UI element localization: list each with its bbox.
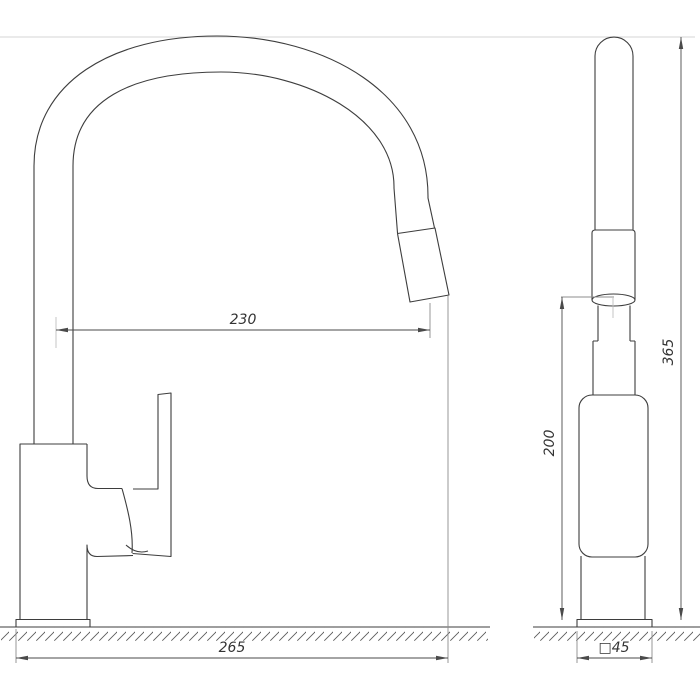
spout-outer-line: [34, 36, 435, 444]
arrow-right-spout-reach: [418, 328, 430, 332]
faucet-dimension-drawing: 230 265 200 365 □45: [0, 0, 700, 700]
arrow-left-overall-length: [16, 656, 28, 660]
neck-lower-side: [593, 341, 635, 395]
side-view: [577, 37, 652, 627]
body-lower-side: [581, 556, 645, 620]
base-plate-side: [577, 620, 652, 628]
arrow-left-spout-reach: [56, 328, 68, 332]
dim-label-overall-length: 265: [219, 640, 246, 656]
neck-upper-side: [598, 306, 630, 342]
ground: [0, 627, 700, 641]
dim-label-overall-height: 365: [661, 339, 677, 366]
arrow-top-height-to-aerator: [560, 297, 564, 309]
dimension-annotations: 230 265 200 365 □45: [16, 37, 683, 663]
body-left-outline: [20, 444, 87, 620]
arrow-right-base-size: [640, 656, 652, 660]
handle-hub-lower-curve: [126, 545, 148, 552]
aerator-ellipse: [592, 294, 635, 306]
arrow-right-overall-length: [436, 656, 448, 660]
dim-label-height-to-aerator: 200: [542, 430, 558, 457]
arrow-left-base-size: [577, 656, 589, 660]
dim-label-base-size: □45: [598, 640, 629, 656]
body-lower-shelf: [87, 545, 133, 620]
arrow-top-overall-height: [679, 37, 683, 49]
body-shell-side: [579, 395, 648, 557]
body-upper-shelf: [87, 444, 122, 489]
handle-lever: [133, 393, 172, 557]
dim-label-spout-reach: 230: [230, 312, 257, 328]
ground-hatch-left: [1, 628, 488, 641]
arrow-bottom-overall-height: [679, 608, 683, 620]
ground-hatch-right: [534, 628, 700, 641]
spout-tube-side: [595, 37, 633, 230]
spout-inner-line: [73, 72, 398, 444]
arrow-bottom-height-to-aerator: [560, 608, 564, 620]
spray-head: [398, 228, 450, 302]
technical-drawing-sheet: 230 265 200 365 □45: [0, 0, 700, 700]
handle-hub-front-curve: [122, 489, 132, 554]
base-plate-front: [16, 620, 90, 628]
front-view: [16, 36, 449, 627]
spray-head-side: [592, 230, 635, 300]
